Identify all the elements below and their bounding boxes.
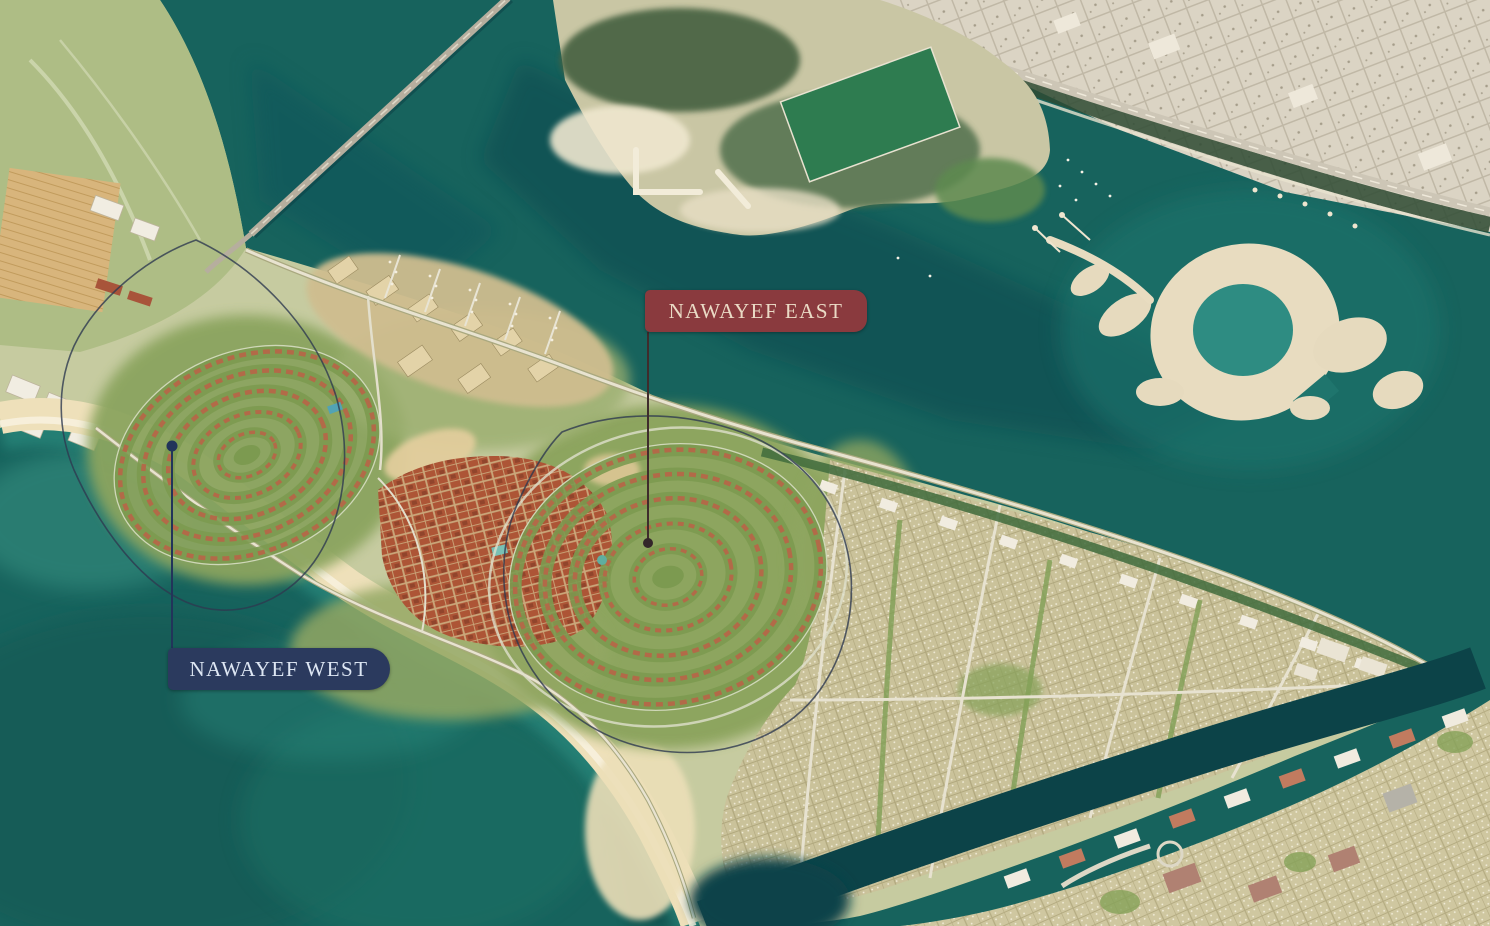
lagoon [1193,284,1293,376]
spit-sand [550,106,690,174]
map-canvas [0,0,1490,926]
nawayef-west-label: NAWAYEF WEST [168,648,390,690]
east-pond [597,555,607,565]
east-leader-dot [643,538,653,548]
satellite-map: NAWAYEF EAST NAWAYEF WEST [0,0,1490,926]
nawayef-east-label: NAWAYEF EAST [645,290,867,332]
nawayef-west-label-text: NAWAYEF WEST [189,657,368,682]
west-leader-dot [167,441,178,452]
spit-lawn [935,158,1045,222]
spit-vegetation [560,8,800,112]
farm-plots [0,168,121,312]
spit-sand-2 [680,188,840,232]
nawayef-east-label-text: NAWAYEF EAST [669,299,844,324]
